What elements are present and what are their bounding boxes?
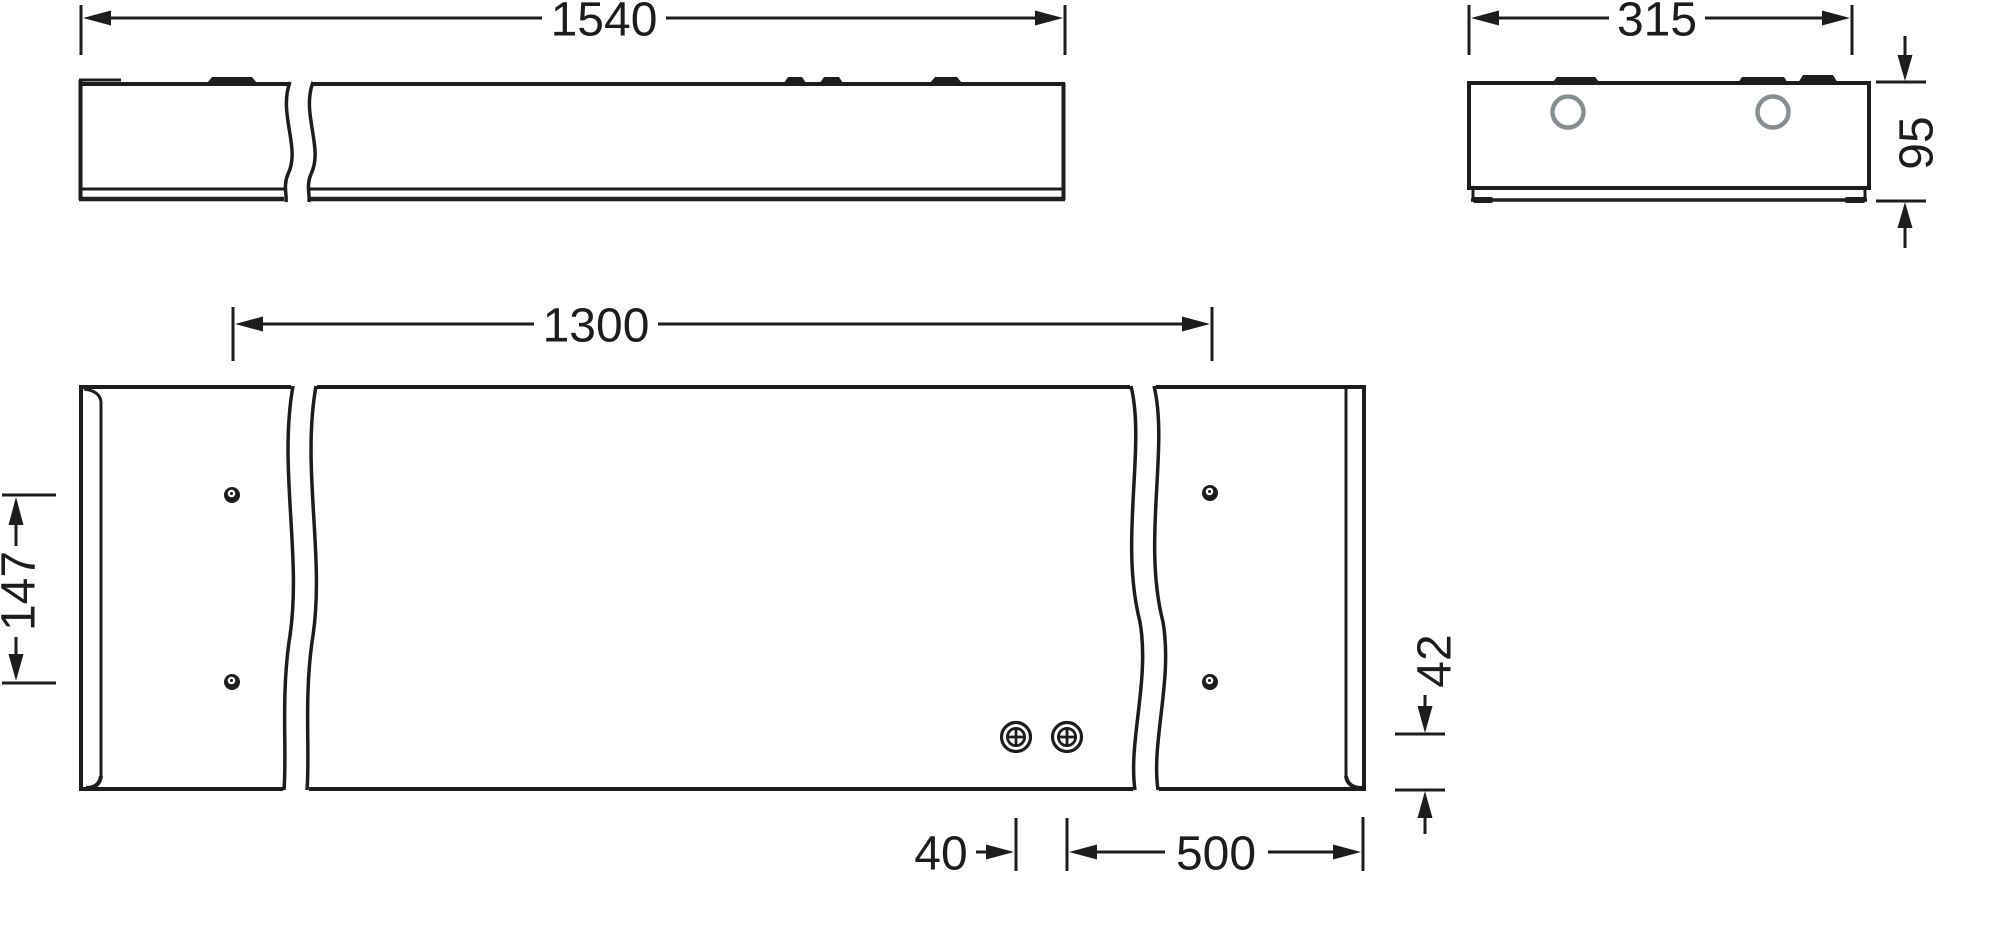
arrowhead-up — [1418, 791, 1433, 818]
rivet-icon — [1202, 485, 1218, 501]
dim-label-1300: 1300 — [543, 299, 650, 352]
end-cap-foot — [1346, 776, 1362, 788]
arrowhead-up — [1898, 202, 1913, 228]
rivet-icon — [224, 674, 240, 690]
phillips-screw-icon — [1053, 723, 1082, 752]
arrowhead-left — [235, 317, 263, 332]
arrowhead-left — [83, 11, 111, 26]
dim-95: 95 — [1876, 36, 1943, 248]
phillips-screw-icon — [1002, 723, 1031, 752]
dim-315: 315 — [1469, 0, 1852, 55]
drawing-svg: 1540 — [0, 0, 2000, 949]
dim-label-147: 147 — [0, 551, 45, 631]
top-clip-icon — [1738, 77, 1788, 83]
dim-1300: 1300 — [233, 299, 1212, 361]
rivet-icon — [224, 487, 240, 503]
arrowhead-down — [1898, 55, 1913, 81]
end-cap-line — [84, 389, 101, 778]
break-line — [1131, 386, 1143, 790]
dim-1540: 1540 — [81, 0, 1065, 55]
arrowhead-right — [986, 845, 1014, 860]
arrowhead-down — [1418, 706, 1433, 733]
arrowhead-right — [1822, 11, 1850, 26]
top-clip-icon — [930, 77, 962, 83]
top-clip-icon — [1798, 75, 1838, 83]
end-view-body — [1469, 75, 1869, 203]
dim-label-1540: 1540 — [551, 0, 658, 46]
arrowhead-left — [1471, 11, 1499, 26]
dim-147: 147 — [0, 495, 56, 683]
arrowhead-right — [1333, 845, 1361, 860]
dim-label-40: 40 — [914, 827, 967, 880]
end-view: 315 95 — [1469, 0, 1943, 248]
foot-pad-icon — [1845, 197, 1865, 203]
arrowhead-left — [1069, 845, 1097, 860]
top-clip-icon — [1552, 77, 1600, 83]
mounting-hole-icon — [1553, 97, 1584, 128]
dim-label-42: 42 — [1408, 634, 1461, 687]
dimension-drawing-canvas: 1540 — [0, 0, 2000, 949]
arrowhead-right — [1035, 11, 1063, 26]
arrowhead-up — [9, 497, 24, 525]
top-clip-icon — [784, 77, 806, 83]
dim-40: 40 — [914, 818, 1016, 880]
dim-label-500: 500 — [1176, 827, 1256, 880]
break-line — [307, 386, 316, 790]
bottom-view-body — [79, 386, 1366, 790]
dim-label-315: 315 — [1617, 0, 1697, 46]
break-line — [285, 82, 292, 202]
arrowhead-right — [1182, 317, 1210, 332]
mounting-hole-icon — [1758, 97, 1789, 128]
foot-pad-icon — [1473, 197, 1493, 203]
dim-42: 42 — [1395, 634, 1461, 834]
break-line — [284, 386, 293, 790]
end-cap-foot — [86, 776, 101, 788]
arrowhead-down — [9, 654, 24, 681]
dim-label-95: 95 — [1890, 116, 1943, 169]
dim-500: 500 — [1067, 817, 1363, 880]
top-clip-icon — [820, 77, 843, 83]
side-view: 1540 — [79, 0, 1065, 202]
break-line — [308, 82, 315, 202]
top-clip-icon — [207, 77, 257, 83]
rivet-icon — [1202, 674, 1218, 690]
bottom-view: 1300 — [0, 299, 1461, 880]
side-view-body — [79, 77, 1065, 202]
break-line — [1154, 386, 1166, 790]
